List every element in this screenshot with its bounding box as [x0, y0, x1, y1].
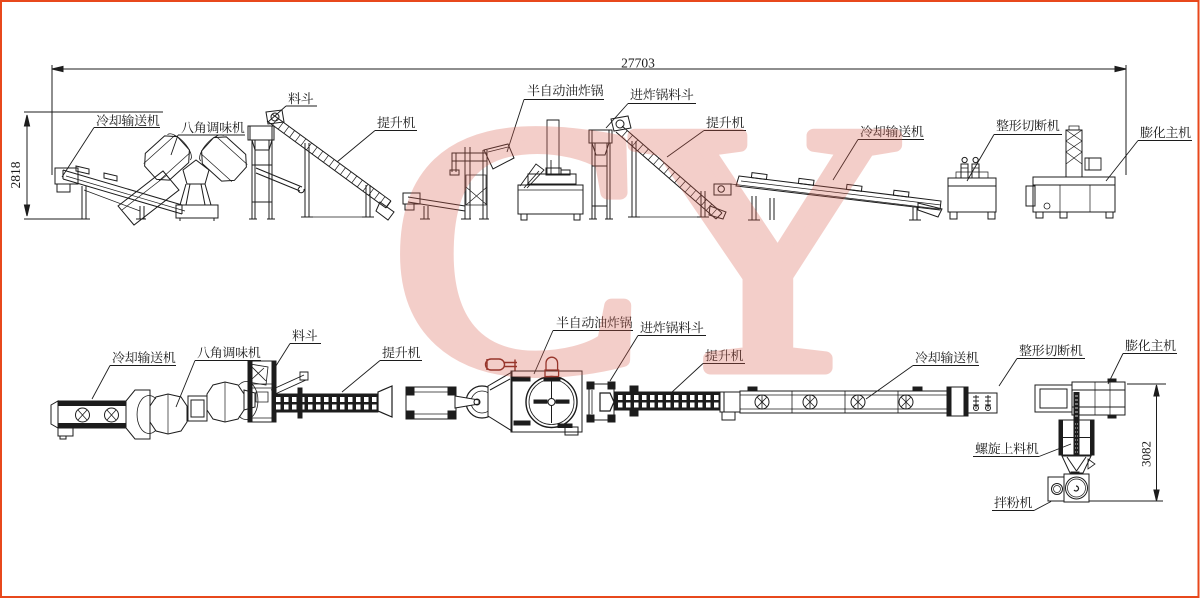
svg-text:2818: 2818	[8, 161, 23, 188]
svg-text:CY: CY	[392, 53, 897, 445]
svg-text:3082: 3082	[1139, 441, 1154, 467]
